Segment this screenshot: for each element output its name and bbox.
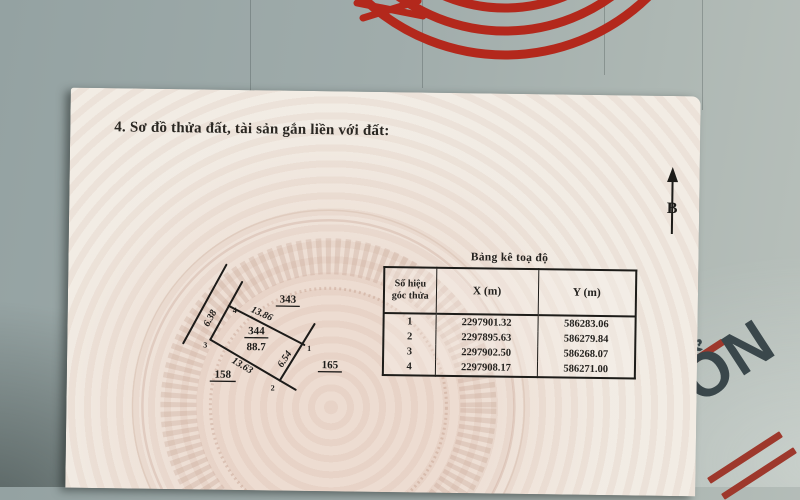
corner-label-1: 1 — [307, 344, 311, 353]
corner-label-2: 2 — [271, 383, 275, 392]
coordinate-table-title: Bảng kê toạ độ — [383, 250, 635, 266]
north-arrow-shaft — [672, 178, 673, 234]
red-arcs-logo-decoration — [330, 0, 670, 70]
col-header-x: X (m) — [436, 268, 539, 315]
sign-red-stripe — [721, 447, 797, 500]
corner-label-4: 4 — [233, 306, 237, 315]
col-header-corner: Số hiệu góc thửa — [384, 267, 437, 314]
adjacent-parcel-158: 158 — [214, 369, 231, 381]
corner-number: 2 — [383, 329, 435, 345]
y-coordinate: 586279.84 — [537, 331, 635, 347]
parcel-area: 88.7 — [247, 341, 267, 353]
edge-length-left: 6.38 — [201, 308, 219, 329]
wall-panel-seam — [250, 0, 251, 95]
table-header-row: Số hiệu góc thửa X (m) Y (m) — [384, 267, 637, 317]
adjacent-parcel-165: 165 — [322, 359, 339, 371]
x-coordinate: 2297901.32 — [435, 314, 537, 331]
wall-panel-seam — [702, 0, 703, 110]
corner-label-3: 3 — [203, 340, 207, 349]
table-row: 4 2297908.17 586271.00 — [383, 359, 635, 379]
north-arrow-head — [667, 167, 678, 182]
section-title: 4. Sơ đồ thửa đất, tài sản gắn liền với … — [114, 119, 390, 140]
boundary-line — [183, 264, 226, 344]
y-coordinate: 586268.07 — [537, 346, 635, 362]
edge-length-top: 13.86 — [249, 304, 274, 323]
edge-length-right: 6.54 — [276, 349, 295, 370]
col-header-y: Y (m) — [538, 269, 637, 316]
north-arrow: B — [654, 166, 691, 244]
x-coordinate: 2297902.50 — [435, 345, 537, 361]
corner-number: 1 — [383, 313, 435, 330]
corner-number: 4 — [383, 359, 435, 376]
corner-number: 3 — [383, 344, 435, 360]
sign-red-stripe — [707, 431, 783, 484]
parcel-diagram: 4 3 2 1 13.86 6.38 13.63 6.54 344 88.7 3… — [174, 253, 396, 406]
edge-length-bottom: 13.63 — [230, 355, 255, 376]
coordinate-table: Bảng kê toạ độ Số hiệu góc thửa X (m) Y … — [382, 250, 636, 380]
x-coordinate: 2297895.63 — [435, 330, 537, 346]
y-coordinate: 586271.00 — [537, 361, 635, 378]
y-coordinate: 586283.06 — [537, 315, 635, 332]
x-coordinate: 2297908.17 — [435, 360, 537, 377]
parcel-number: 344 — [248, 325, 265, 337]
photo-of-land-certificate: { "document": { "section_title": "4. Sơ … — [0, 0, 800, 487]
adjacent-parcel-343: 343 — [280, 294, 297, 306]
certificate-page: 4. Sơ đồ thửa đất, tài sản gắn liền với … — [65, 88, 701, 497]
